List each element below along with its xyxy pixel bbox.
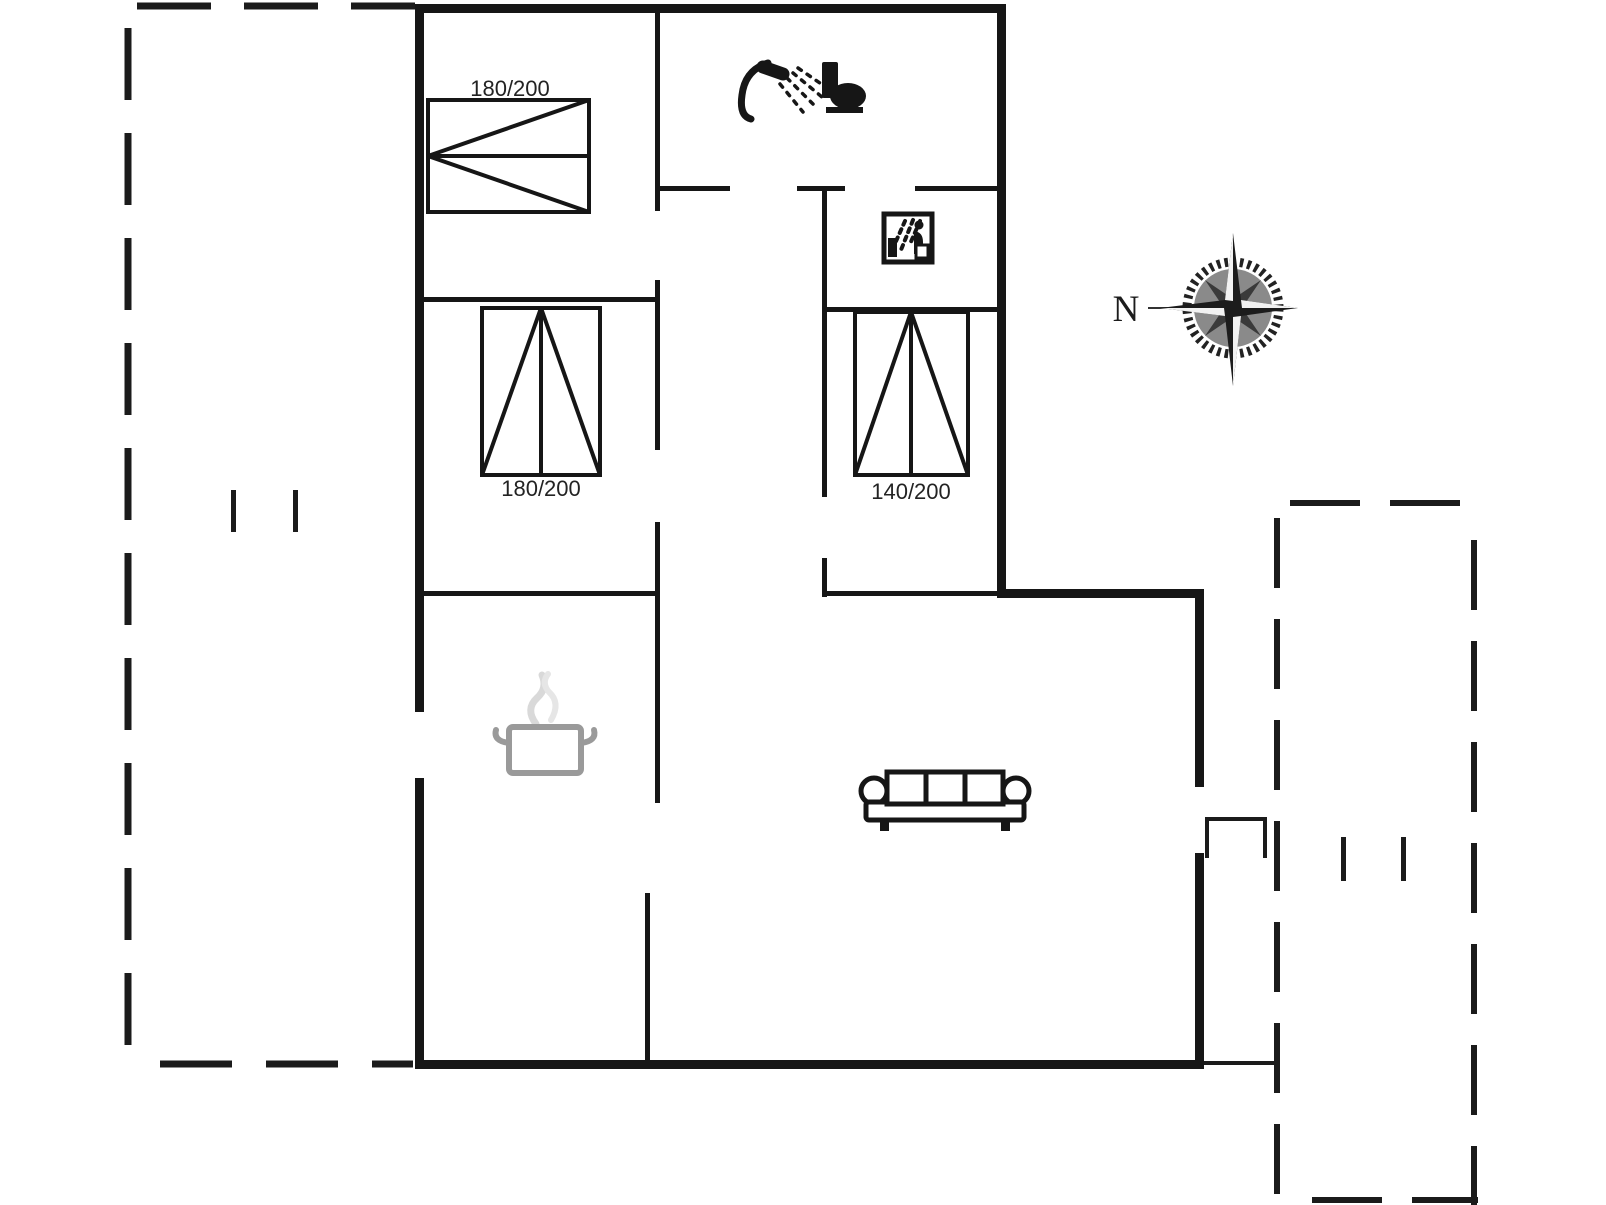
- wall-exterior-right-upper: [997, 4, 1006, 598]
- wall-exterior-right-lower: [1195, 853, 1204, 1069]
- wall-exterior-right-mid: [1195, 589, 1204, 787]
- boundary-tick-left-2: [293, 490, 298, 532]
- boundary-tick-right-2: [1401, 837, 1406, 881]
- bed-double-bedroom1: [428, 100, 589, 212]
- compass-north-label: N: [1104, 288, 1148, 331]
- cooking-pot-icon: [496, 674, 595, 773]
- bed-size-label-bedroom1: 180/200: [430, 76, 590, 102]
- wall-bedroom1-right: [655, 12, 660, 211]
- terrace-connector-line: [1204, 1061, 1277, 1065]
- floor-plan-drawing: [0, 0, 1606, 1205]
- terrace-outlines: [128, 6, 1478, 1205]
- interior-walls: [423, 12, 1002, 1061]
- wall-bedroom3-living: [822, 591, 1002, 596]
- sauna-spray-icon: [884, 214, 932, 262]
- beds: [428, 100, 968, 475]
- wall-bedroom1-bedroom2: [423, 297, 660, 302]
- bed-double-bedroom3: [855, 312, 968, 475]
- bed-double-bedroom2: [482, 308, 600, 475]
- wall-exterior-top: [415, 4, 1006, 13]
- wall-bedroom2-kitchen: [423, 591, 660, 596]
- bed-size-label-bedroom3: 140/200: [831, 479, 991, 505]
- exterior-walls: [415, 4, 1204, 1069]
- wall-exterior-bottom: [415, 1060, 1204, 1069]
- entrance-step: [1207, 819, 1265, 858]
- wall-exterior-left-lower: [415, 778, 424, 1069]
- wall-hall-top-a: [655, 186, 730, 191]
- sofa-icon: [861, 772, 1029, 831]
- wall-dining-divider: [645, 893, 650, 1061]
- compass-rose-icon: [1148, 233, 1298, 386]
- wall-hall-left-b-kitchen: [655, 522, 660, 803]
- site-details: [231, 490, 1406, 1065]
- boundary-tick-right-1: [1341, 837, 1346, 881]
- toilet-icon: [822, 62, 866, 113]
- wall-bath-utility: [915, 186, 997, 191]
- wall-hall-left-a: [655, 280, 660, 450]
- shower-icon: [741, 63, 830, 119]
- boundary-tick-left-1: [231, 490, 236, 532]
- wall-exterior-step: [997, 589, 1204, 598]
- bed-size-label-bedroom2: 180/200: [461, 476, 621, 502]
- floor-plan-canvas: 180/200 180/200 140/200 N: [0, 0, 1606, 1205]
- wall-hall-right-a: [822, 190, 827, 497]
- wall-exterior-left-upper: [415, 4, 424, 712]
- wall-hall-top-b: [797, 186, 845, 191]
